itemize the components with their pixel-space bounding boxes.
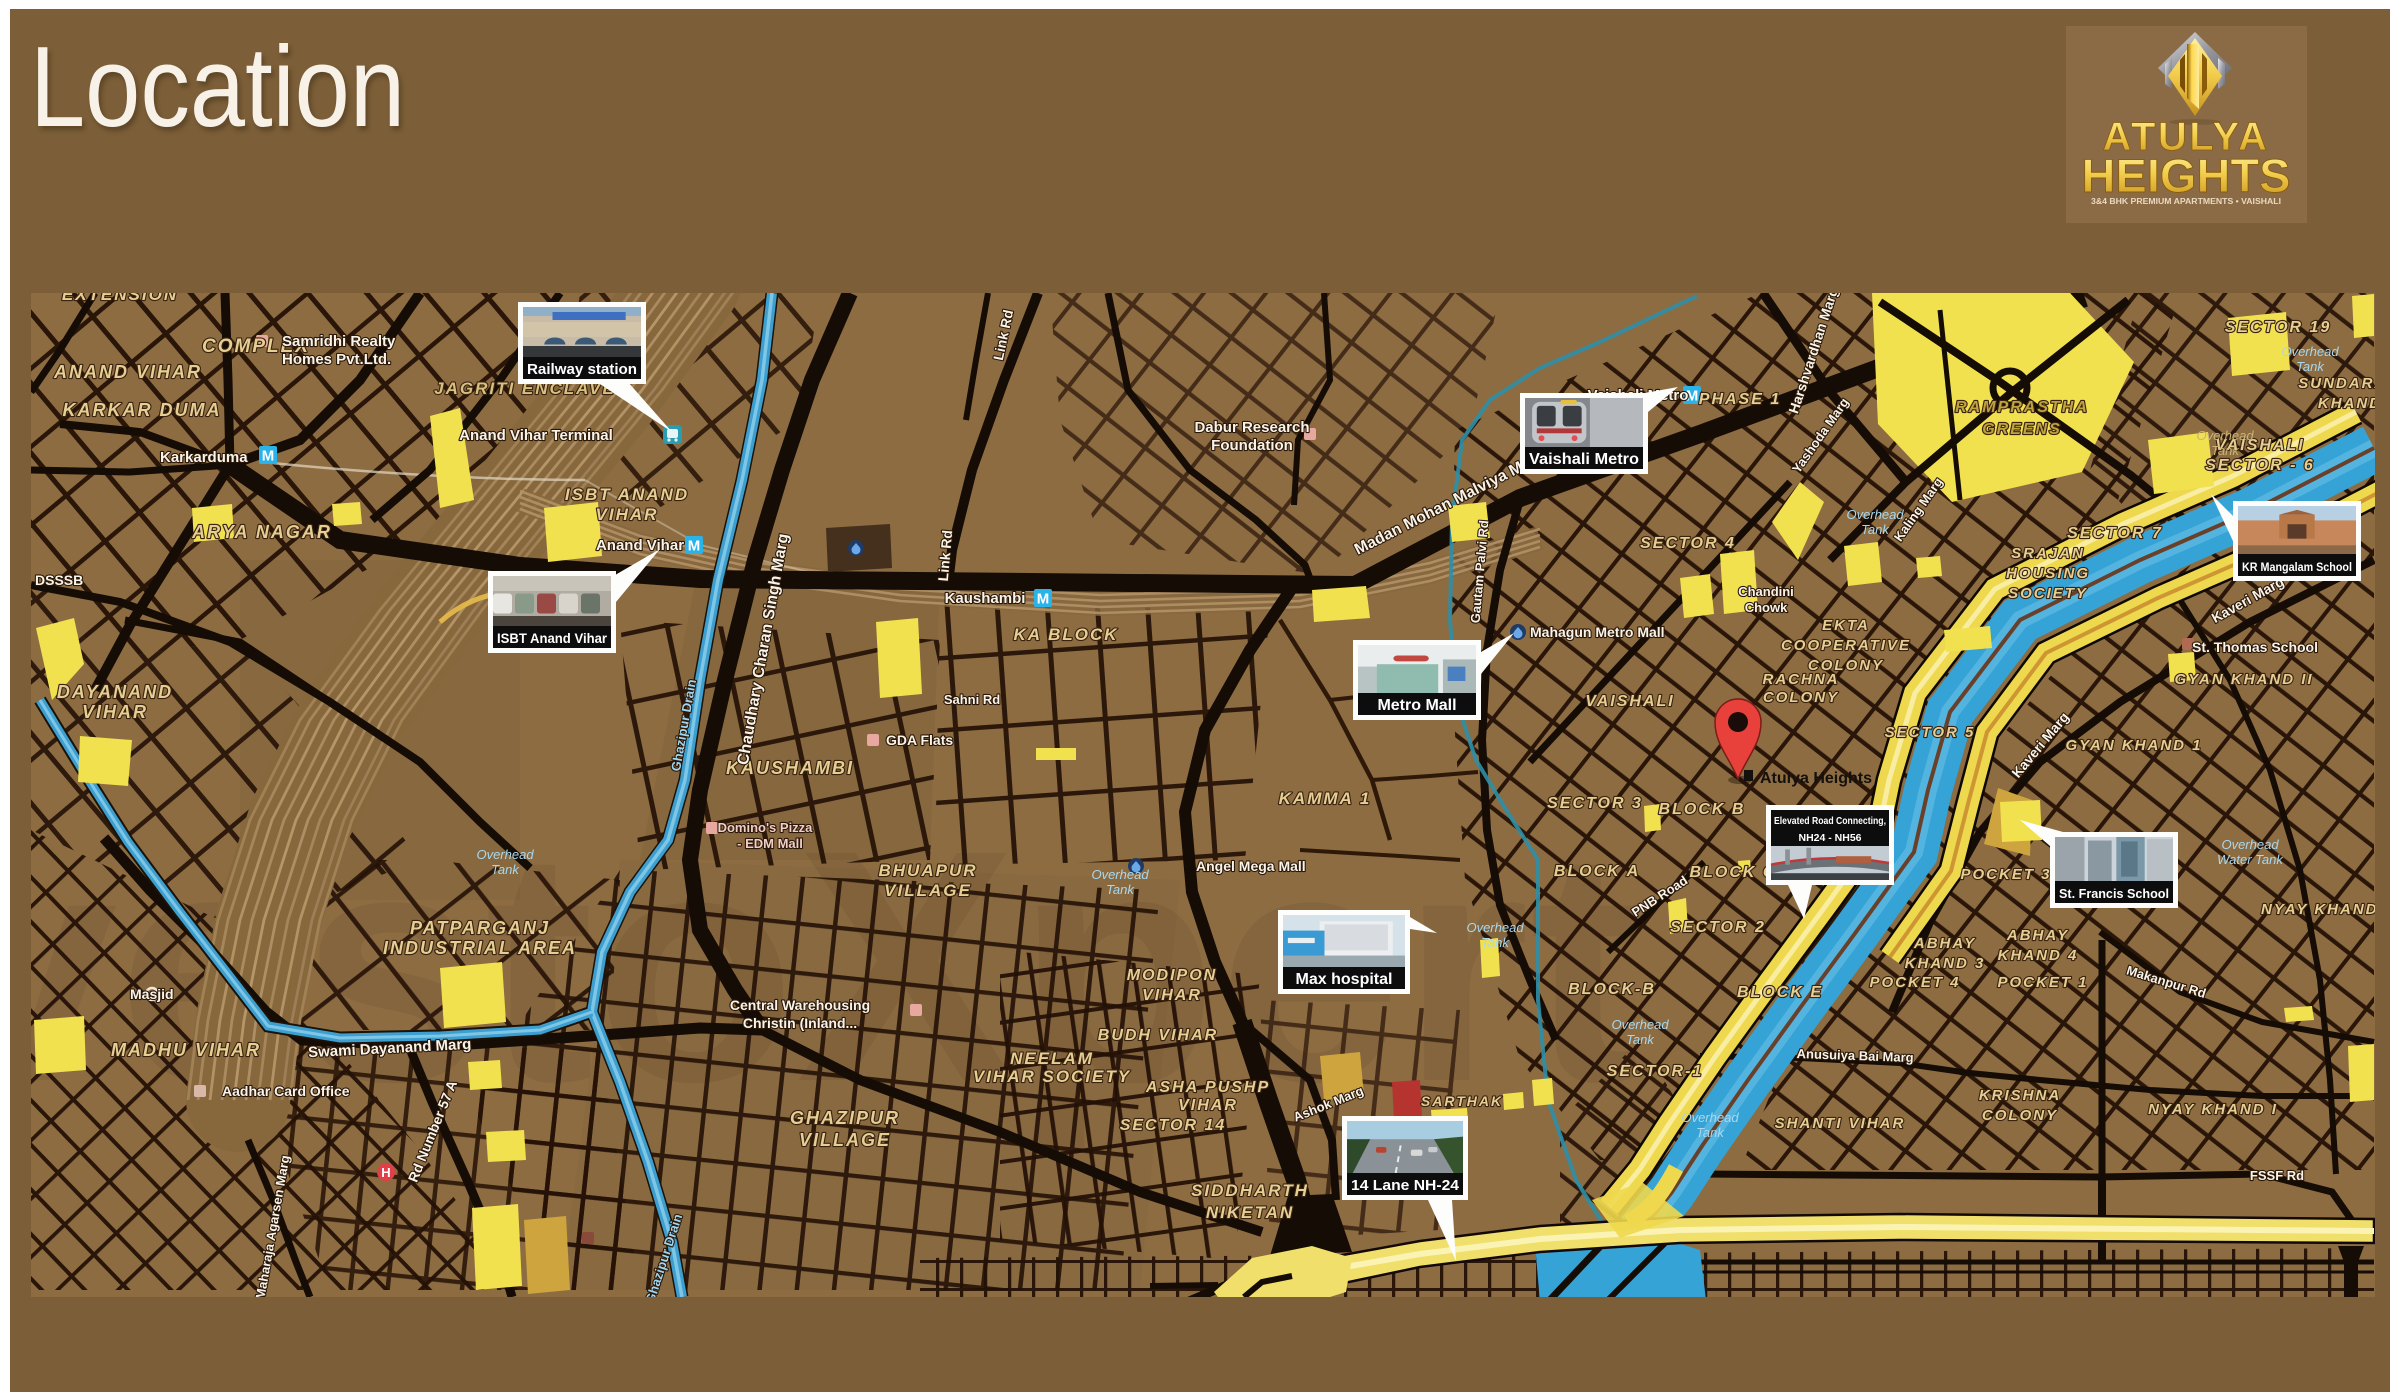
svg-text:EKTA: EKTA [1822,617,1870,634]
svg-text:Masjid: Masjid [130,986,174,1002]
svg-text:Tank: Tank [491,862,520,877]
svg-text:Aadhar Card Office: Aadhar Card Office [222,1083,350,1099]
svg-text:VIHAR: VIHAR [82,702,148,722]
svg-text:EXTENSION: EXTENSION [62,293,178,304]
svg-text:BLOCK A: BLOCK A [1554,863,1640,880]
svg-text:NYAY KHAND I: NYAY KHAND I [2148,1101,2278,1118]
svg-text:Overhead: Overhead [1466,920,1524,935]
svg-text:VIHAR: VIHAR [1142,987,1202,1004]
svg-text:- EDM Mall: - EDM Mall [737,836,803,851]
svg-text:BLOCK-B: BLOCK-B [1568,981,1656,998]
svg-text:Foundation: Foundation [1211,437,1293,454]
svg-text:SUNDARAM: SUNDARAM [2298,375,2375,392]
svg-text:BHUAPUR: BHUAPUR [879,861,978,880]
svg-text:GREENS: GREENS [1982,421,2062,438]
svg-text:BLOCK B: BLOCK B [1659,801,1746,818]
svg-text:ASHA PUSHP: ASHA PUSHP [1145,1079,1270,1096]
svg-text:RACHNA: RACHNA [1763,671,1840,688]
svg-text:Homes Pvt.Ltd.: Homes Pvt.Ltd. [282,351,391,368]
svg-text:COOPERATIVE: COOPERATIVE [1781,637,1911,654]
svg-text:Tank: Tank [1861,522,1890,537]
svg-text:Overhead: Overhead [1091,867,1149,882]
svg-text:NYAY KHAND 4: NYAY KHAND 4 [2261,901,2375,918]
svg-text:NH24 - NH56: NH24 - NH56 [1798,832,1861,844]
svg-text:FSSF Rd: FSSF Rd [2250,1168,2304,1183]
svg-text:ISBT Anand Vihar: ISBT Anand Vihar [497,630,608,646]
svg-text:SOCIETY: SOCIETY [2008,585,2088,602]
svg-text:KRISHNA: KRISHNA [1979,1087,2061,1104]
svg-text:HOUSING: HOUSING [2006,565,2090,582]
svg-text:3&4 BHK PREMIUM APARTMENTS • V: 3&4 BHK PREMIUM APARTMENTS • VAISHALI [2091,196,2281,206]
svg-text:VIHAR: VIHAR [596,505,659,524]
svg-text:Mahagun Metro Mall: Mahagun Metro Mall [1530,624,1665,640]
svg-text:SARTHAK: SARTHAK [1421,1093,1503,1109]
svg-text:SECTOR 5: SECTOR 5 [1885,724,1976,741]
svg-text:SECTOR 14: SECTOR 14 [1120,1117,1227,1134]
svg-text:Karkarduma: Karkarduma [160,449,248,466]
svg-text:POCKET 1: POCKET 1 [1997,974,2088,991]
svg-text:VIHAR: VIHAR [1178,1097,1238,1114]
svg-text:Tank: Tank [1106,882,1135,897]
svg-text:GDA Flats: GDA Flats [886,732,953,748]
svg-text:HEIGHTS: HEIGHTS [2082,149,2291,202]
svg-text:DAYANAND: DAYANAND [57,682,173,702]
svg-text:KAMMA 1: KAMMA 1 [1279,789,1372,808]
svg-text:KARKAR DUMA: KARKAR DUMA [63,400,222,420]
svg-text:KHAND 3: KHAND 3 [1905,955,1986,972]
svg-text:Chandini: Chandini [1738,584,1794,599]
svg-text:COLONY: COLONY [1763,689,1839,706]
svg-text:KHAND 4: KHAND 4 [1998,947,2079,964]
svg-text:RAMPRASTHA: RAMPRASTHA [1955,399,2089,416]
svg-text:VILLAGE: VILLAGE [799,1130,891,1150]
svg-text:Overhead: Overhead [2221,837,2279,852]
svg-text:Elevated Road Connecting,: Elevated Road Connecting, [1774,815,1886,827]
svg-text:INDUSTRIAL AREA: INDUSTRIAL AREA [383,938,577,958]
svg-text:St. Francis School: St. Francis School [2059,886,2169,901]
svg-text:SECTOR - 6: SECTOR - 6 [2205,457,2315,474]
svg-text:ABHAY: ABHAY [1913,935,1976,952]
svg-text:ISBT ANAND: ISBT ANAND [565,485,689,504]
svg-text:Atulya Heights: Atulya Heights [1760,770,1872,787]
svg-text:SECTOR 4: SECTOR 4 [1640,535,1736,552]
svg-text:BUDH VIHAR: BUDH VIHAR [1098,1027,1218,1044]
svg-text:KHAND: KHAND [2318,395,2375,412]
svg-text:Christin (Inland...: Christin (Inland... [743,1015,857,1031]
svg-text:Anand Vihar Terminal: Anand Vihar Terminal [459,427,613,444]
svg-text:DSSSB: DSSSB [35,572,83,588]
svg-text:PHASE 1: PHASE 1 [1699,391,1781,408]
svg-text:Overhead: Overhead [2281,344,2339,359]
svg-text:Overhead: Overhead [2196,428,2254,443]
svg-text:Central Warehousing: Central Warehousing [730,997,870,1013]
svg-text:Tank: Tank [1626,1032,1655,1047]
svg-text:ARYA NAGAR: ARYA NAGAR [191,522,332,542]
svg-text:Overhead: Overhead [1611,1017,1669,1032]
svg-text:Overhead: Overhead [1846,507,1904,522]
svg-text:PATPARGANJ: PATPARGANJ [410,918,550,938]
svg-text:M: M [1037,591,1050,608]
svg-text:Vaishali Metro: Vaishali Metro [1529,451,1639,468]
svg-text:VILLAGE: VILLAGE [884,881,972,900]
svg-text:Angel Mega Mall: Angel Mega Mall [1196,858,1306,874]
svg-text:M: M [262,448,275,465]
svg-text:Metro Mall: Metro Mall [1377,697,1456,714]
svg-text:M: M [688,538,701,555]
svg-text:H: H [381,1165,390,1180]
svg-text:SRAJAN: SRAJAN [2011,545,2085,562]
svg-text:POCKET 4: POCKET 4 [1869,974,1960,991]
svg-text:SIDDHARTH: SIDDHARTH [1191,1181,1309,1200]
svg-text:GYAN KHAND 1: GYAN KHAND 1 [2065,737,2202,754]
svg-text:GYAN KHAND II: GYAN KHAND II [2174,671,2313,688]
svg-text:Overhead: Overhead [1681,1110,1739,1125]
svg-text:Railway station: Railway station [527,361,637,378]
svg-text:Tank: Tank [1696,1125,1725,1140]
svg-text:GHAZIPUR: GHAZIPUR [790,1108,900,1128]
svg-text:Chowk: Chowk [1745,600,1788,615]
svg-text:KA BLOCK: KA BLOCK [1013,625,1118,644]
svg-text:COLONY: COLONY [1982,1107,2058,1124]
svg-text:BLOCK E: BLOCK E [1737,984,1823,1001]
svg-text:Max hospital: Max hospital [1296,971,1393,988]
svg-text:Tank: Tank [2211,443,2240,458]
svg-text:SECTOR 19: SECTOR 19 [2225,319,2332,336]
svg-text:VAISHALI: VAISHALI [1585,693,1674,710]
svg-text:ABHAY: ABHAY [2006,927,2069,944]
svg-text:BLOCK C: BLOCK C [1690,864,1777,881]
svg-text:Tank: Tank [1481,935,1510,950]
svg-text:Samridhi Realty: Samridhi Realty [282,333,396,350]
svg-text:Water Tank: Water Tank [2217,852,2284,867]
svg-text:POCKET 3: POCKET 3 [1960,866,2051,883]
svg-text:MADHU VIHAR: MADHU VIHAR [111,1040,261,1060]
svg-text:Domino's Pizza: Domino's Pizza [718,820,814,835]
svg-text:SECTOR 2: SECTOR 2 [1670,919,1766,936]
svg-text:MODIPON: MODIPON [1127,967,1217,984]
svg-text:SECTOR 3: SECTOR 3 [1547,795,1643,812]
svg-text:SECTOR-1: SECTOR-1 [1607,1063,1704,1080]
svg-text:14 Lane NH-24: 14 Lane NH-24 [1351,1177,1460,1194]
svg-text:Anand Vihar: Anand Vihar [596,537,684,554]
svg-text:Kaushambi: Kaushambi [945,590,1026,607]
svg-text:NIKETAN: NIKETAN [1206,1203,1294,1222]
svg-text:SHANTI VIHAR: SHANTI VIHAR [1775,1115,1906,1132]
svg-text:Dabur Research: Dabur Research [1194,419,1309,436]
svg-text:Sahni Rd: Sahni Rd [944,692,1000,707]
svg-text:NEELAM: NEELAM [1010,1049,1094,1068]
svg-text:VIHAR SOCIETY: VIHAR SOCIETY [973,1067,1131,1086]
svg-text:SECTOR 7: SECTOR 7 [2067,525,2163,542]
svg-text:ANAND VIHAR: ANAND VIHAR [53,362,202,382]
svg-text:Tank: Tank [2296,359,2325,374]
svg-text:KR Mangalam School: KR Mangalam School [2242,560,2352,574]
svg-text:St. Thomas School: St. Thomas School [2192,639,2318,655]
svg-text:Overhead: Overhead [476,847,534,862]
